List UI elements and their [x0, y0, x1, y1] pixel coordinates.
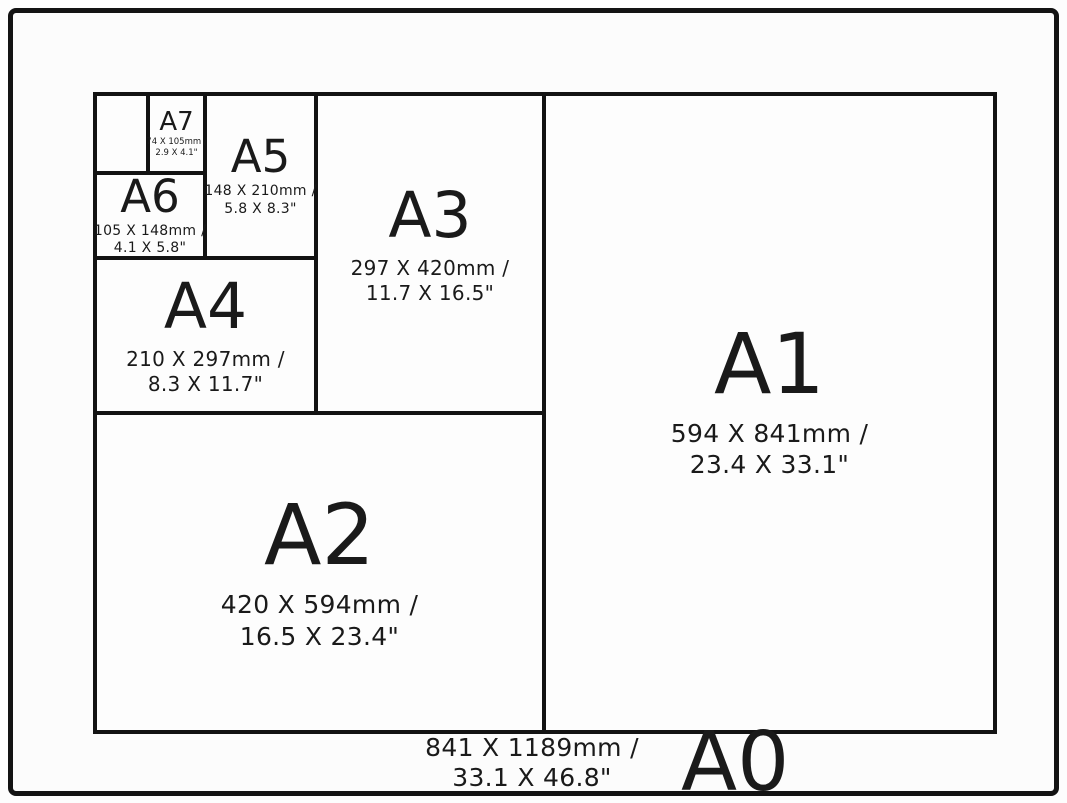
a7-dimensions: 74 X 105mm / 2.9 X 4.1" [146, 137, 206, 158]
a5-label: A5 [231, 134, 290, 179]
a4-dimensions-mm: 210 X 297mm / [126, 347, 285, 371]
a2-dimensions: 420 X 594mm / 16.5 X 23.4" [221, 589, 418, 652]
a0-dimensions-mm: 841 X 1189mm / [425, 733, 639, 762]
a7-dimensions-inches: 2.9 X 4.1" [155, 148, 197, 158]
a5-dimensions-inches: 5.8 X 8.3" [224, 201, 296, 217]
a0-dimensions: 841 X 1189mm / 33.1 X 46.8" [407, 733, 657, 793]
a4-label: A4 [164, 275, 247, 338]
a5-dimensions: 148 X 210mm / 5.8 X 8.3" [204, 183, 316, 218]
a0-caption: 841 X 1189mm / 33.1 X 46.8" A0 [407, 727, 789, 799]
a2-dimensions-inches: 16.5 X 23.4" [240, 622, 399, 651]
a0-sheet-frame: A7 74 X 105mm / 2.9 X 4.1" A6 105 X 148m… [8, 8, 1059, 796]
a5-dimensions-mm: 148 X 210mm / [204, 183, 316, 199]
nested-sizes-grid: A7 74 X 105mm / 2.9 X 4.1" A6 105 X 148m… [93, 92, 997, 734]
a7-label: A7 [159, 109, 193, 135]
a3-dimensions-mm: 297 X 420mm / [351, 256, 510, 280]
a1-dimensions-inches: 23.4 X 33.1" [690, 450, 849, 479]
a3-cell: A3 297 X 420mm / 11.7 X 16.5" [318, 96, 542, 411]
a2-cell: A2 420 X 594mm / 16.5 X 23.4" [97, 415, 542, 730]
a1-dimensions-mm: 594 X 841mm / [671, 419, 868, 448]
a5-cell: A5 148 X 210mm / 5.8 X 8.3" [207, 96, 314, 256]
a0-label: A0 [681, 726, 789, 800]
a1-cell: A1 594 X 841mm / 23.4 X 33.1" [546, 96, 993, 730]
paper-sizes-diagram: A7 74 X 105mm / 2.9 X 4.1" A6 105 X 148m… [0, 0, 1067, 803]
a6-dimensions: 105 X 148mm / 4.1 X 5.8" [94, 223, 206, 258]
a3-label: A3 [388, 184, 471, 247]
a4-dimensions-inches: 8.3 X 11.7" [148, 372, 263, 396]
a3-dimensions-inches: 11.7 X 16.5" [366, 281, 494, 305]
unlabeled-small-cell [97, 96, 146, 171]
a2-label: A2 [264, 493, 375, 577]
a0-dimensions-inches: 33.1 X 46.8" [452, 763, 611, 792]
a6-dimensions-inches: 4.1 X 5.8" [114, 240, 186, 256]
a6-dimensions-mm: 105 X 148mm / [94, 223, 206, 239]
a7-cell: A7 74 X 105mm / 2.9 X 4.1" [150, 96, 203, 171]
a7-dimensions-mm: 74 X 105mm / [146, 137, 206, 147]
a3-dimensions: 297 X 420mm / 11.7 X 16.5" [351, 256, 510, 306]
a4-dimensions: 210 X 297mm / 8.3 X 11.7" [126, 347, 285, 397]
a2-dimensions-mm: 420 X 594mm / [221, 590, 418, 619]
a1-label: A1 [714, 322, 825, 406]
a1-dimensions: 594 X 841mm / 23.4 X 33.1" [671, 418, 868, 481]
a6-label: A6 [120, 174, 179, 219]
a4-cell: A4 210 X 297mm / 8.3 X 11.7" [97, 260, 314, 411]
a6-cell: A6 105 X 148mm / 4.1 X 5.8" [97, 175, 203, 256]
